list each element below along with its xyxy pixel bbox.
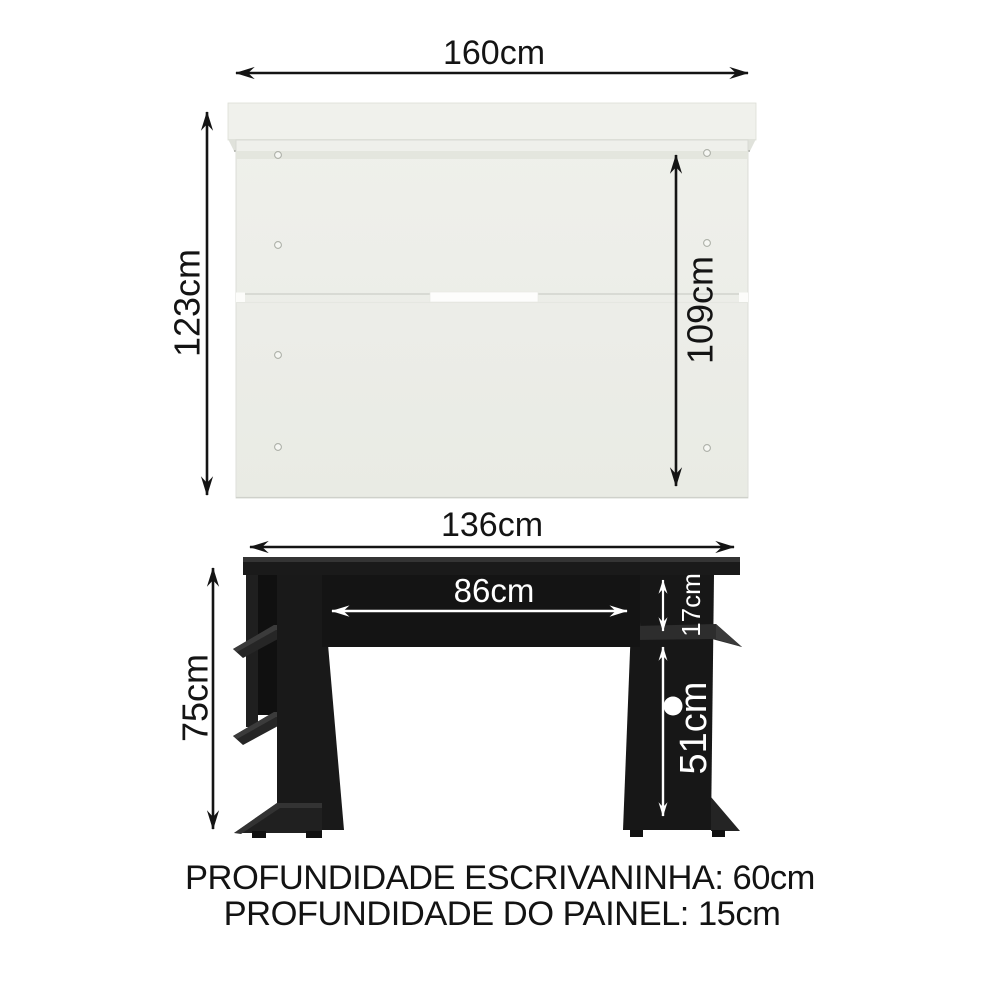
dim-panel-width-label: 160cm [443,34,545,72]
diagram-canvas: 160cm 123cm 109cm [0,0,1000,1000]
dim-panel-height: 123cm [167,112,208,495]
desk-top-surface [243,557,740,562]
footer-depth-notes: PROFUNDIDADE ESCRIVANINHA: 60cm PROFUNDI… [185,859,815,933]
dim-desk-width: 136cm [250,506,734,547]
dim-desk-height-label: 75cm [175,654,216,742]
dim-desk-under-top-label: 51cm [673,682,715,775]
footer-line-2: PROFUNDIDADE DO PAINEL: 15cm [224,895,781,933]
screw-hole [704,240,711,247]
dim-desk-width-label: 136cm [441,506,543,544]
screw-hole [275,444,282,451]
dim-desk-shelf-gap-label: 17cm [676,573,706,637]
product-dimension-diagram: 160cm 123cm 109cm [0,0,1000,1000]
panel-seam-notch-left [236,293,245,303]
right-foot [712,830,725,837]
ledge-shadow [236,151,748,159]
right-base-wedge [711,797,740,831]
screw-hole [275,352,282,359]
screw-hole [275,242,282,249]
desk-front-view: 86cm 17cm 51cm [233,557,742,838]
left-foot [252,831,266,838]
screw-hole [704,445,711,452]
dim-panel-width: 160cm [236,34,748,73]
screw-hole [275,152,282,159]
screw-hole [704,150,711,157]
right-foot [630,830,643,837]
dim-desk-inner-width-label: 86cm [454,572,535,609]
panel-body-shading [237,141,747,497]
right-shelf-tip [716,624,742,647]
panel-seam-notch-right [739,293,748,303]
panel-seam-opening [430,292,538,302]
dim-desk-height: 75cm [175,568,216,829]
dim-panel-inner-height-label: 109cm [680,256,721,364]
dim-panel-height-label: 123cm [167,249,208,357]
left-foot [306,831,322,838]
footer-line-1: PROFUNDIDADE ESCRIVANINHA: 60cm [185,859,815,897]
